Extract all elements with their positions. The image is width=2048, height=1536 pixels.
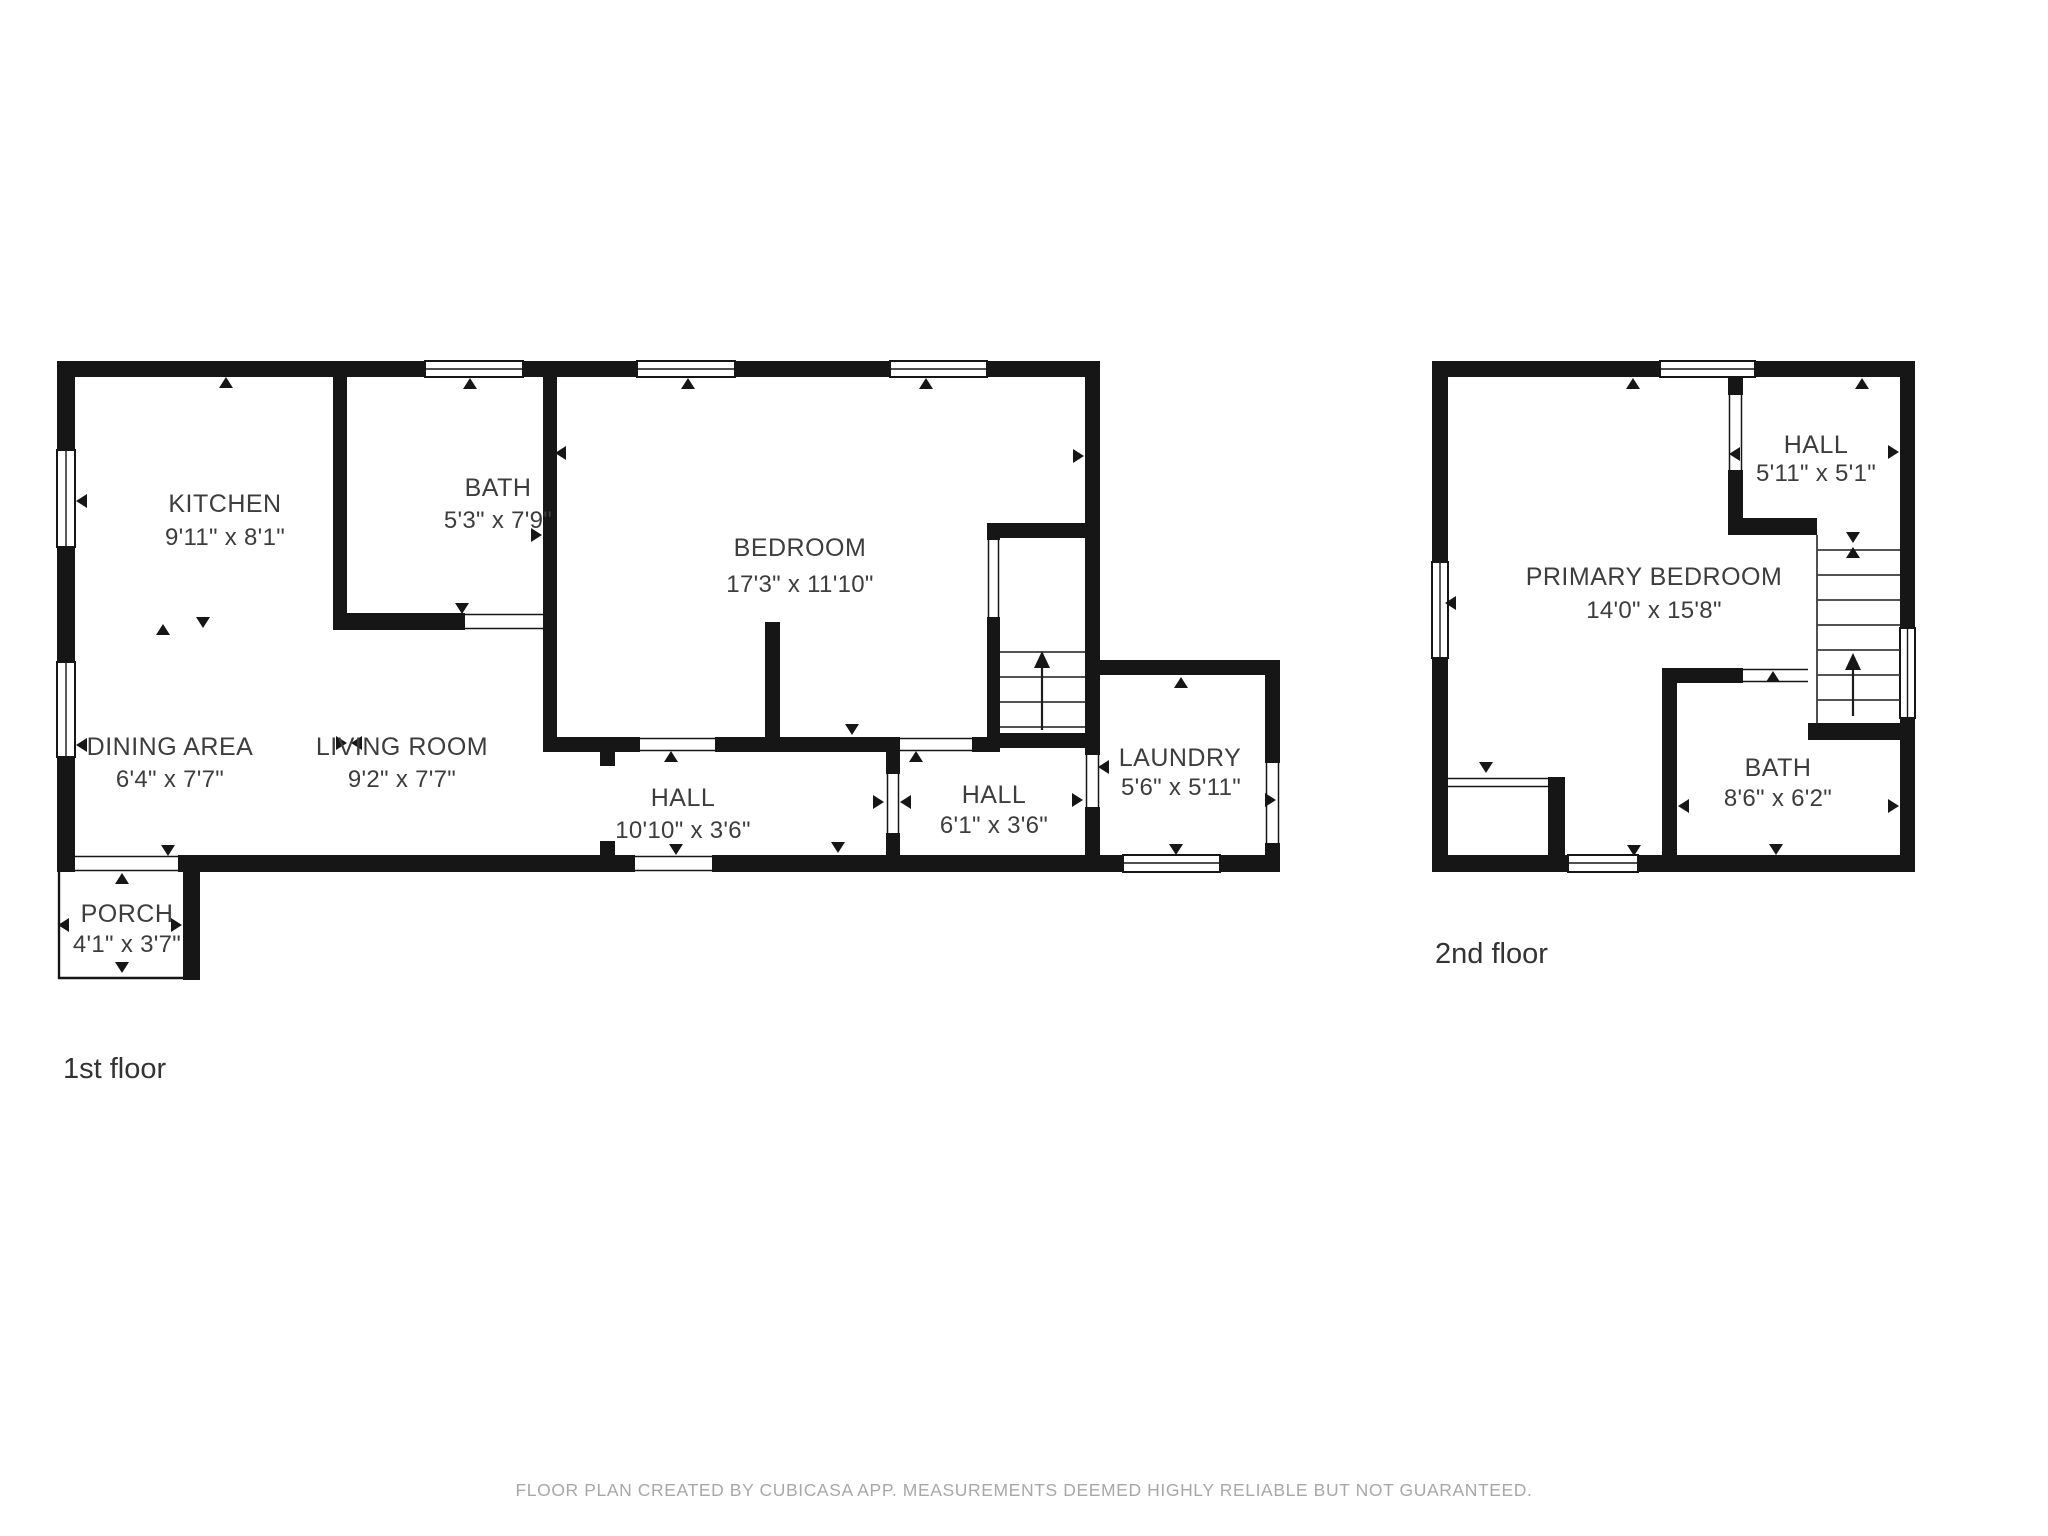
- bedroom-dims: 17'3" x 11'10": [726, 571, 873, 598]
- bath1-name: BATH: [465, 474, 532, 502]
- room-label-hall-2: HALL 5'11" x 5'1": [1756, 431, 1876, 487]
- first-floor-room-labels: KITCHEN 9'11" x 8'1" BATH 5'3" x 7'9" BE…: [73, 474, 1241, 958]
- room-label-porch: PORCH 4'1" x 3'7": [73, 900, 181, 958]
- laundry-name: LAUNDRY: [1119, 744, 1242, 772]
- primary-bedroom-dims: 14'0" x 15'8": [1586, 597, 1722, 624]
- room-label-bedroom: BEDROOM 17'3" x 11'10": [726, 534, 873, 598]
- bath1-dims: 5'3" x 7'9": [444, 507, 552, 534]
- kitchen-dims: 9'11" x 8'1": [165, 524, 285, 551]
- bath2-name: BATH: [1745, 754, 1812, 782]
- room-label-bath-2: BATH 8'6" x 6'2": [1724, 754, 1832, 812]
- living-dims: 9'2" x 7'7": [348, 766, 456, 793]
- room-label-bath-1: BATH 5'3" x 7'9": [444, 474, 552, 534]
- hall2-name: HALL: [1784, 431, 1849, 459]
- first-floor-stairs: [1000, 651, 1085, 730]
- room-label-kitchen: KITCHEN 9'11" x 8'1": [165, 490, 285, 551]
- first-floor-label: 1st floor: [63, 1053, 166, 1085]
- kitchen-name: KITCHEN: [168, 490, 281, 518]
- hall-short-dims: 6'1" x 3'6": [940, 812, 1048, 839]
- second-floor-label: 2nd floor: [1435, 938, 1548, 970]
- first-floor-walls: [57, 361, 1280, 980]
- footer-disclaimer: FLOOR PLAN CREATED BY CUBICASA APP. MEAS…: [515, 1480, 1532, 1500]
- hall2-dims: 5'11" x 5'1": [1756, 460, 1876, 487]
- room-label-dining-area: DINING AREA 6'4" x 7'7": [87, 733, 254, 793]
- room-label-laundry: LAUNDRY 5'6" x 5'11": [1119, 744, 1242, 801]
- primary-bedroom-name: PRIMARY BEDROOM: [1526, 563, 1783, 591]
- dining-name: DINING AREA: [87, 733, 254, 761]
- bath2-dims: 8'6" x 6'2": [1724, 785, 1832, 812]
- second-floor-plan: HALL 5'11" x 5'1" PRIMARY BEDROOM 14'0" …: [1432, 361, 1915, 970]
- porch-dims: 4'1" x 3'7": [73, 931, 181, 958]
- hall-short-name: HALL: [962, 781, 1027, 809]
- second-floor-room-labels: HALL 5'11" x 5'1" PRIMARY BEDROOM 14'0" …: [1526, 431, 1876, 812]
- first-floor-windows: [57, 361, 1220, 872]
- room-label-primary-bedroom: PRIMARY BEDROOM 14'0" x 15'8": [1526, 563, 1783, 624]
- hall-long-name: HALL: [651, 784, 716, 812]
- laundry-dims: 5'6" x 5'11": [1121, 774, 1241, 801]
- second-floor-stairs: [1817, 532, 1900, 723]
- room-label-hall-short: HALL 6'1" x 3'6": [940, 781, 1048, 839]
- floor-plan-page: KITCHEN 9'11" x 8'1" BATH 5'3" x 7'9" BE…: [0, 0, 2048, 1536]
- porch-name: PORCH: [81, 900, 174, 928]
- room-label-hall-long: HALL 10'10" x 3'6": [615, 784, 751, 844]
- hall-long-dims: 10'10" x 3'6": [615, 817, 751, 844]
- dining-dims: 6'4" x 7'7": [116, 766, 224, 793]
- bedroom-name: BEDROOM: [734, 534, 867, 562]
- first-floor-plan: KITCHEN 9'11" x 8'1" BATH 5'3" x 7'9" BE…: [57, 361, 1280, 1085]
- floor-plan-canvas: KITCHEN 9'11" x 8'1" BATH 5'3" x 7'9" BE…: [0, 0, 2048, 1536]
- room-label-living-room: LIVING ROOM 9'2" x 7'7": [316, 733, 488, 793]
- living-name: LIVING ROOM: [316, 733, 488, 761]
